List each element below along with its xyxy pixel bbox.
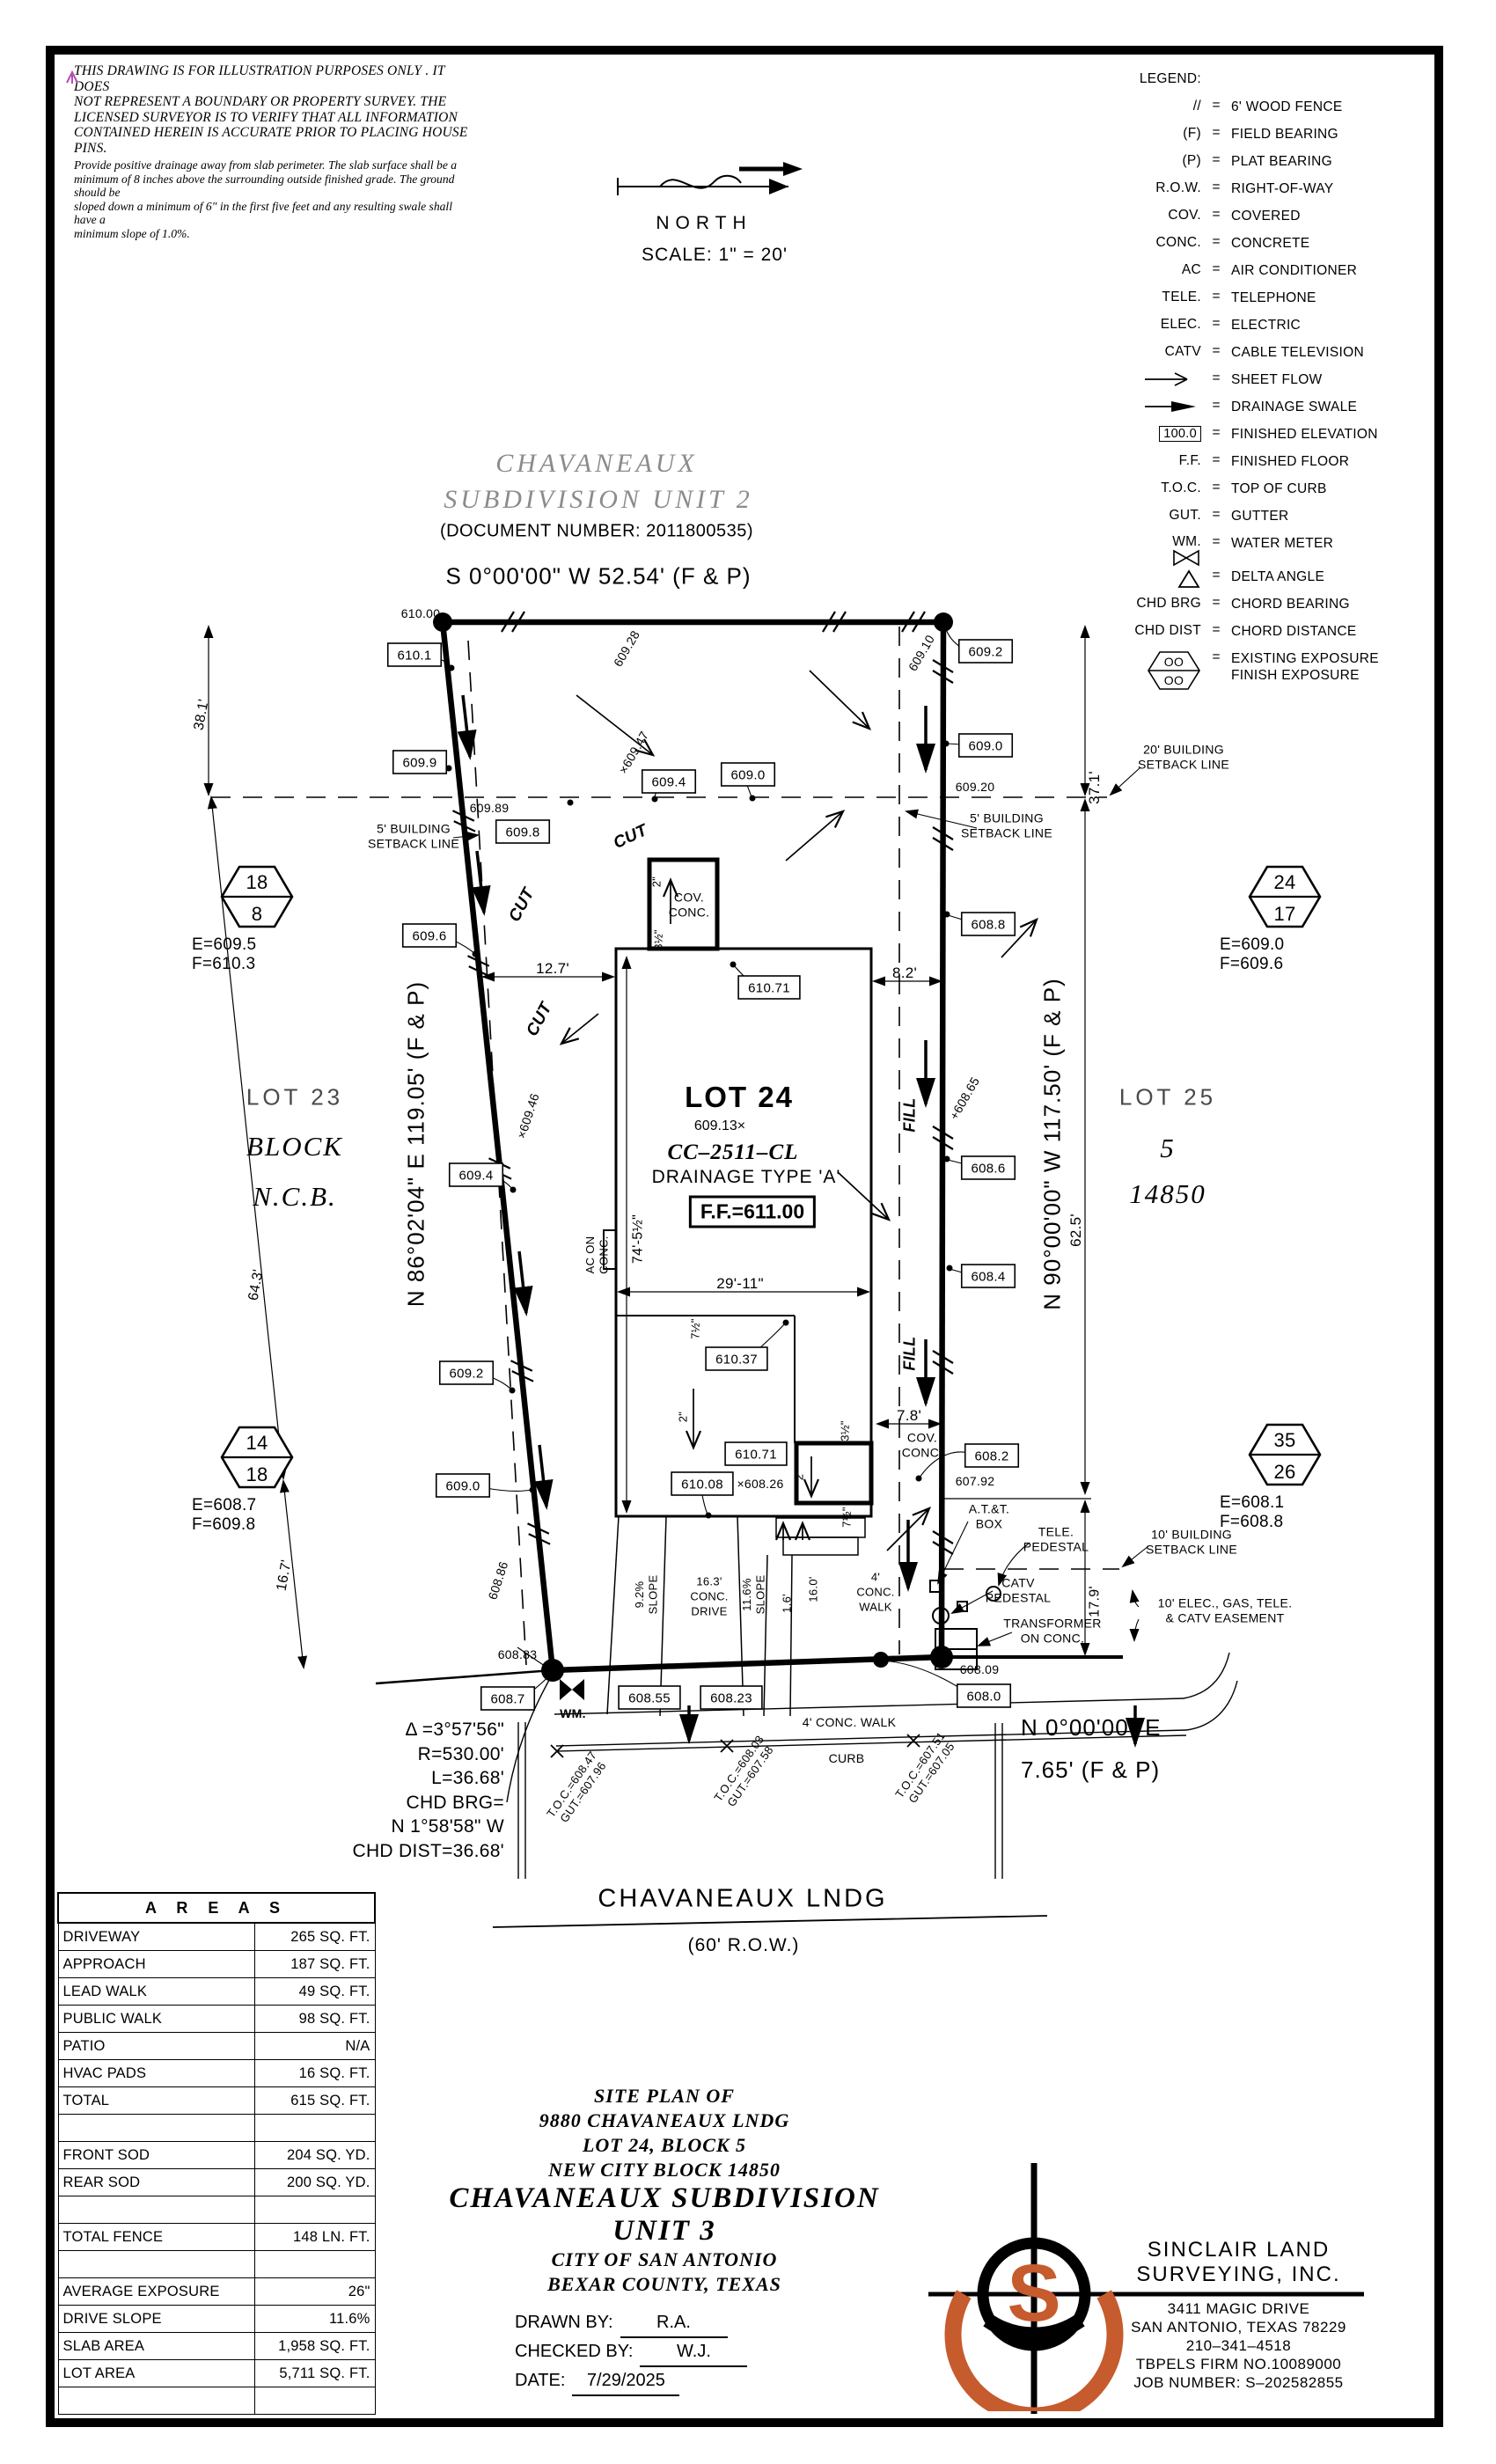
elevation-box-label: 608.6 <box>962 1156 1016 1179</box>
svg-text:609.28: 609.28 <box>611 628 642 670</box>
legend-description: CABLE TELEVISION <box>1231 343 1364 361</box>
legend-symbol: GUT. <box>1069 507 1201 524</box>
areas-row <box>58 2115 375 2142</box>
legend-symbol <box>1069 370 1201 387</box>
svg-text:PEDESTAL: PEDESTAL <box>1023 1539 1089 1553</box>
firm-name-1: SINCLAIR LAND <box>1135 2238 1342 2262</box>
firm-name: SINCLAIR LAND SURVEYING, INC. <box>1135 2238 1342 2287</box>
svg-text:609.0: 609.0 <box>445 1478 480 1493</box>
svg-text:609.89: 609.89 <box>470 801 510 815</box>
plat-text-label: ×609.46 <box>514 1091 542 1140</box>
areas-value: 265 SQ. FT. <box>255 1923 375 1951</box>
svg-text:COV.: COV. <box>907 1431 937 1445</box>
svg-text:608.8: 608.8 <box>971 917 1005 932</box>
svg-text:F=608.8: F=608.8 <box>1220 1513 1283 1531</box>
svg-text:16.0': 16.0' <box>807 1576 820 1602</box>
plat-text-label: 5' BUILDINGSETBACK LINE <box>961 811 1052 840</box>
areas-row: PUBLIC WALK98 SQ. FT. <box>58 2006 375 2033</box>
lot23-block: BLOCK <box>246 1131 343 1162</box>
plat-text-label: 2" <box>650 876 664 888</box>
areas-row: DRIVEWAY265 SQ. FT. <box>58 1923 375 1951</box>
svg-text:12.7': 12.7' <box>536 960 569 977</box>
svg-text:7.8': 7.8' <box>897 1407 921 1424</box>
areas-value <box>255 2196 375 2224</box>
tb-line8: BEXAR COUNTY, TEXAS <box>418 2272 911 2297</box>
svg-text:26: 26 <box>1273 1461 1295 1483</box>
tb-line5: CHAVANEAUX SUBDIVISION <box>418 2182 911 2215</box>
svg-text:COV.: COV. <box>674 891 704 905</box>
plat-text-label: CONC. <box>690 1590 728 1603</box>
checked-by-label: CHECKED BY: <box>515 2342 633 2361</box>
plat-text-label: CUT <box>523 999 556 1039</box>
cursor-mark-icon <box>65 70 79 84</box>
svg-text:CURB: CURB <box>829 1751 865 1765</box>
legend-symbol: AC <box>1069 261 1201 278</box>
legend-symbol <box>1069 568 1201 590</box>
legend-row: F.F.=FINISHED FLOOR <box>1069 452 1439 480</box>
svg-text:64.3': 64.3' <box>246 1268 267 1302</box>
plat-text-label: 16.0' <box>807 1576 820 1602</box>
legend-title: LEGEND: <box>1069 70 1201 87</box>
areas-row: HVAC PADS16 SQ. FT. <box>58 2060 375 2087</box>
svg-text:610.37: 610.37 <box>715 1352 758 1367</box>
legend-symbol: F.F. <box>1069 452 1201 469</box>
svg-text:SETBACK LINE: SETBACK LINE <box>368 836 459 850</box>
scale-label: SCALE: 1" = 20' <box>642 245 788 266</box>
legend-equals: = <box>1201 595 1231 611</box>
svg-text:2": 2" <box>793 1470 806 1481</box>
areas-value: 16 SQ. FT. <box>255 2060 375 2087</box>
bearing-south-line-1: N 0°00'00" E <box>1021 1714 1161 1742</box>
areas-label: HVAC PADS <box>58 2060 255 2087</box>
checked-by-row: CHECKED BY:W.J. <box>515 2338 911 2367</box>
firm-logo-icon: S <box>928 2174 1140 2411</box>
svg-text:CONC.: CONC. <box>669 905 710 919</box>
legend-equals: = <box>1201 343 1231 359</box>
svg-text:29'-11": 29'-11" <box>716 1275 764 1292</box>
plat-text-label: 7.8' <box>897 1407 921 1424</box>
plat-text-label: 16.3' <box>696 1575 722 1588</box>
svg-text:35: 35 <box>1273 1429 1295 1451</box>
legend-equals: = <box>1201 480 1231 495</box>
exposure-marker: 2417E=609.0F=609.6 <box>1220 867 1320 973</box>
areas-value: 11.6% <box>255 2306 375 2333</box>
legend-description: GUTTER <box>1231 507 1289 524</box>
svg-text:AC ON: AC ON <box>583 1236 597 1274</box>
plat-text-label: 62.5' <box>1067 1214 1084 1247</box>
legend-equals: = <box>1201 180 1231 195</box>
svg-text:WM.: WM. <box>560 1706 586 1720</box>
plat-text-label: 5' BUILDINGSETBACK LINE <box>368 822 459 851</box>
svg-text:24: 24 <box>1273 871 1295 893</box>
svg-text:8: 8 <box>252 903 263 925</box>
plat-text-label: 10' BUILDINGSETBACK LINE <box>1146 1528 1237 1557</box>
legend-header-row: LEGEND: <box>1069 70 1439 98</box>
plat-text-label: 12.7' <box>536 960 569 977</box>
disclaimer-paragraph-1: THIS DRAWING IS FOR ILLUSTRATION PURPOSE… <box>74 63 470 156</box>
bearing-south-line-2: 7.65' (F & P) <box>1021 1756 1160 1784</box>
elevation-box-label: 610.1 <box>388 643 442 666</box>
plat-text-label: 609.20 <box>956 780 995 794</box>
svg-text:OO: OO <box>1164 655 1184 669</box>
plat-text-label: 29'-11" <box>716 1275 764 1292</box>
elevation-box-label: 608.2 <box>965 1444 1019 1467</box>
svg-text:11.6%: 11.6% <box>740 1578 753 1611</box>
plat-text-label: 608.86 <box>485 1559 510 1601</box>
date-value: 7/29/2025 <box>572 2367 679 2396</box>
svg-text:20' BUILDING: 20' BUILDING <box>1143 743 1224 757</box>
elevation-box-label: 610.71 <box>738 976 800 999</box>
areas-value: 204 SQ. YD. <box>255 2142 375 2169</box>
areas-row: REAR SOD200 SQ. YD. <box>58 2169 375 2196</box>
areas-label: DRIVE SLOPE <box>58 2306 255 2333</box>
svg-text:610.00: 610.00 <box>401 606 441 620</box>
legend-row: T.O.C.=TOP OF CURB <box>1069 480 1439 507</box>
legend-description: AIR CONDITIONER <box>1231 261 1357 279</box>
svg-text:A.T.&T.: A.T.&T. <box>969 1502 1009 1516</box>
svg-text:SETBACK LINE: SETBACK LINE <box>961 825 1052 840</box>
svg-text:3½": 3½" <box>652 929 665 950</box>
legend-row: 100.0=FINISHED ELEVATION <box>1069 425 1439 452</box>
plat-text-label: FILL <box>900 1336 918 1370</box>
tb-line7: CITY OF SAN ANTONIO <box>418 2248 911 2272</box>
legend-symbol: 100.0 <box>1069 425 1201 442</box>
areas-label <box>58 2251 255 2278</box>
firm-phone: 210–341–4518 <box>1118 2336 1360 2355</box>
bearing-north-line: S 0°00'00" W 52.54' (F & P) <box>445 563 751 590</box>
legend-symbol: T.O.C. <box>1069 480 1201 496</box>
areas-label: APPROACH <box>58 1951 255 1978</box>
elevation-box-label: 608.23 <box>700 1686 762 1709</box>
legend-row: =DRAINAGE SWALE <box>1069 398 1439 425</box>
disclaimer-block: THIS DRAWING IS FOR ILLUSTRATION PURPOSE… <box>74 63 470 241</box>
plat-text-label: AC ONCONC. <box>583 1236 611 1273</box>
lot25-label: LOT 25 <box>1119 1084 1216 1111</box>
legend-equals: = <box>1201 398 1231 414</box>
areas-row: SLAB AREA1,958 SQ. FT. <box>58 2333 375 2360</box>
plat-text-label: CATVPEDESTAL <box>986 1576 1052 1605</box>
svg-text:610.71: 610.71 <box>735 1447 777 1462</box>
areas-table: A R E A S DRIVEWAY265 SQ. FT.APPROACH187… <box>57 1892 376 2415</box>
legend-description: DRAINAGE SWALE <box>1231 398 1357 415</box>
legend-symbol: (P) <box>1069 152 1201 169</box>
elevation-box-label: 609.0 <box>436 1474 490 1497</box>
svg-text:608.55: 608.55 <box>628 1690 671 1705</box>
legend-description: CHORD DISTANCE <box>1231 622 1357 640</box>
elevation-box-label: 610.71 <box>725 1442 787 1465</box>
disclaimer-paragraph-2: Provide positive drainage away from slab… <box>74 158 470 241</box>
svg-text:CUT: CUT <box>523 999 556 1039</box>
svg-text:SLOPE: SLOPE <box>753 1575 766 1615</box>
plat-text-label: 8.2' <box>892 964 917 981</box>
logo-letter: S <box>1007 2248 1060 2338</box>
areas-value <box>255 2115 375 2142</box>
legend-equals: = <box>1201 207 1231 223</box>
svg-text:609.2: 609.2 <box>968 644 1002 659</box>
plat-text-label: 74'-5½" <box>631 1214 646 1264</box>
plat-text-label: WALK <box>859 1601 892 1614</box>
plat-text-label: TRANSFORMERON CONC. <box>1003 1617 1101 1646</box>
svg-text:608.83: 608.83 <box>498 1647 538 1661</box>
plat-text-label: DRIVE <box>691 1605 727 1618</box>
bearing-west-line: N 86°02'04" E 119.05' (F & P) <box>403 981 430 1307</box>
legend-row: COV.=COVERED <box>1069 207 1439 234</box>
tb-line3: LOT 24, BLOCK 5 <box>418 2133 911 2158</box>
legend-description: CHORD BEARING <box>1231 595 1350 612</box>
svg-text:37.1': 37.1' <box>1086 771 1103 804</box>
areas-value: 26" <box>255 2278 375 2306</box>
areas-row: DRIVE SLOPE11.6% <box>58 2306 375 2333</box>
svg-text:609.0: 609.0 <box>968 738 1002 753</box>
legend-row: =SHEET FLOW <box>1069 370 1439 398</box>
plat-text-label: TELE.PEDESTAL <box>1023 1525 1089 1554</box>
elevation-box-label: 608.0 <box>957 1684 1011 1707</box>
svg-text:608.6: 608.6 <box>971 1161 1005 1176</box>
svg-text:CONC.: CONC. <box>690 1590 728 1603</box>
tb-line2: 9880 CHAVANEAUX LNDG <box>418 2108 911 2133</box>
legend-symbol: ELEC. <box>1069 316 1201 333</box>
legend-description: 6' WOOD FENCE <box>1231 98 1343 115</box>
areas-value: N/A <box>255 2033 375 2060</box>
areas-label: REAR SOD <box>58 2169 255 2196</box>
legend-items: //=6' WOOD FENCE(F)=FIELD BEARING(P)=PLA… <box>1069 98 1439 691</box>
areas-row: FRONT SOD204 SQ. YD. <box>58 2142 375 2169</box>
site-plan-page: 610.00610.1609.9609.89609.8609.6609.4609… <box>0 0 1496 2464</box>
svg-text:CUT: CUT <box>505 884 539 925</box>
areas-label: LOT AREA <box>58 2360 255 2387</box>
legend-row: GUT.=GUTTER <box>1069 507 1439 534</box>
north-label: NORTH <box>656 213 752 234</box>
areas-value: 1,958 SQ. FT. <box>255 2333 375 2360</box>
elevation-box-label: 609.8 <box>496 820 550 843</box>
svg-text:ON CONC.: ON CONC. <box>1021 1631 1084 1645</box>
legend-symbol: CONC. <box>1069 234 1201 251</box>
legend-symbol: OOOO <box>1069 649 1201 691</box>
plat-text-label: CUT <box>611 821 651 853</box>
svg-text:609.2: 609.2 <box>449 1366 483 1381</box>
areas-row: AVERAGE EXPOSURE26" <box>58 2278 375 2306</box>
legend-row: WM.=WATER METER <box>1069 534 1439 568</box>
svg-text:609.9: 609.9 <box>402 755 436 770</box>
plat-text-label: 608.09 <box>960 1662 1000 1676</box>
date-row: DATE:7/29/2025 <box>515 2367 911 2396</box>
legend-row: CHD BRG=CHORD BEARING <box>1069 595 1439 622</box>
legend-description: WATER METER <box>1231 534 1333 552</box>
legend-symbol: R.O.W. <box>1069 180 1201 196</box>
elevation-box-label: 609.0 <box>959 734 1013 757</box>
elevation-box-label: 609.6 <box>403 924 457 947</box>
svg-text:BOX: BOX <box>976 1516 1003 1530</box>
date-label: DATE: <box>515 2371 565 2390</box>
legend-row: TELE.=TELEPHONE <box>1069 289 1439 316</box>
legend-row: =DELTA ANGLE <box>1069 568 1439 595</box>
svg-text:10' ELEC., GAS, TELE.: 10' ELEC., GAS, TELE. <box>1158 1596 1293 1610</box>
elevation-box-label: 609.0 <box>722 763 775 786</box>
lot24-title: LOT 24 <box>685 1081 794 1114</box>
legend-row: (F)=FIELD BEARING <box>1069 125 1439 152</box>
svg-text:5' BUILDING: 5' BUILDING <box>377 822 451 836</box>
legend-row: (P)=PLAT BEARING <box>1069 152 1439 180</box>
areas-label: DRIVEWAY <box>58 1923 255 1951</box>
svg-text:608.7: 608.7 <box>490 1691 524 1706</box>
subdivision-heading-2: SUBDIVISION UNIT 2 <box>444 485 752 515</box>
legend-description: FINISHED ELEVATION <box>1231 425 1378 443</box>
legend-symbol <box>1069 398 1201 414</box>
elevation-box-label: 609.2 <box>959 640 1013 663</box>
legend-description: ELECTRIC <box>1231 316 1301 334</box>
svg-text:DRIVE: DRIVE <box>691 1605 727 1618</box>
exposure-marker: 1418E=608.7F=609.8 <box>192 1427 292 1534</box>
svg-text:609.6: 609.6 <box>412 928 446 943</box>
plat-text-label: 2" <box>793 1470 806 1481</box>
svg-text:609.0: 609.0 <box>730 767 765 782</box>
areas-value: 49 SQ. FT. <box>255 1978 375 2006</box>
elevation-box-label: 608.4 <box>962 1265 1016 1287</box>
svg-text:×609.46: ×609.46 <box>514 1091 542 1140</box>
exposure-marker: 188E=609.5F=610.3 <box>192 867 292 973</box>
elevation-box-label: 609.9 <box>393 751 447 774</box>
svg-text:609.20: 609.20 <box>956 780 995 794</box>
svg-text:OO: OO <box>1164 673 1184 687</box>
areas-row: PATION/A <box>58 2033 375 2060</box>
legend-symbol: CATV <box>1069 343 1201 360</box>
legend-equals: = <box>1201 261 1231 277</box>
areas-row: TOTAL FENCE148 LN. FT. <box>58 2224 375 2251</box>
svg-text:14: 14 <box>246 1432 268 1454</box>
lot24-spot-elevation: 609.13× <box>694 1118 745 1134</box>
legend-equals: = <box>1201 234 1231 250</box>
firm-job-number: JOB NUMBER: S–202582855 <box>1118 2373 1360 2392</box>
legend-description: CONCRETE <box>1231 234 1309 252</box>
svg-text:609.10: 609.10 <box>906 633 937 674</box>
lot24-plan-number: CC–2511–CL <box>668 1140 799 1165</box>
elevation-box-label: 608.55 <box>619 1686 680 1709</box>
areas-value: 148 LN. FT. <box>255 2224 375 2251</box>
plat-text-label: 610.00 <box>401 606 441 620</box>
areas-label: TOTAL FENCE <box>58 2224 255 2251</box>
legend-equals: = <box>1201 370 1231 386</box>
areas-label: PATIO <box>58 2033 255 2060</box>
legend-equals: = <box>1201 316 1231 332</box>
areas-label: LEAD WALK <box>58 1978 255 2006</box>
elevation-box-label: 608.7 <box>481 1687 535 1710</box>
svg-text:4' CONC. WALK: 4' CONC. WALK <box>803 1715 897 1729</box>
svg-text:607.92: 607.92 <box>956 1474 995 1488</box>
svg-text:608.4: 608.4 <box>971 1269 1005 1284</box>
svg-text:608.2: 608.2 <box>974 1448 1008 1463</box>
svg-text:CATV: CATV <box>1001 1576 1035 1590</box>
svg-text:×608.26: ×608.26 <box>737 1477 783 1491</box>
legend: LEGEND: //=6' WOOD FENCE(F)=FIELD BEARIN… <box>1069 70 1439 691</box>
finished-floor-value: F.F.=611.00 <box>689 1196 816 1228</box>
elevation-box-label: 609.4 <box>450 1163 503 1186</box>
plat-text-label: A.T.&T.BOX <box>969 1502 1009 1531</box>
legend-symbol: CHD BRG <box>1069 595 1201 612</box>
water-meter-icon <box>560 1679 584 1700</box>
plat-text-label: COV.CONC. <box>902 1431 943 1460</box>
lot23-label: LOT 23 <box>246 1084 343 1111</box>
svg-text:F=609.6: F=609.6 <box>1220 955 1283 973</box>
svg-text:608.09: 608.09 <box>960 1662 1000 1676</box>
firm-name-2: SURVEYING, INC. <box>1135 2262 1342 2287</box>
svg-text:610.08: 610.08 <box>681 1477 723 1492</box>
firm-addr-1: 3411 MAGIC DRIVE <box>1118 2299 1360 2318</box>
legend-row: //=6' WOOD FENCE <box>1069 98 1439 125</box>
areas-label: PUBLIC WALK <box>58 2006 255 2033</box>
legend-symbol: // <box>1069 98 1201 114</box>
plat-text-label: 609.28 <box>611 628 642 670</box>
firm-address: 3411 MAGIC DRIVE SAN ANTONIO, TEXAS 7822… <box>1118 2299 1360 2392</box>
plat-text-label: 1.6' <box>781 1594 794 1613</box>
legend-description: TELEPHONE <box>1231 289 1316 306</box>
tb-line1: SITE PLAN OF <box>418 2084 911 2108</box>
plat-text-label: CONC. <box>856 1586 894 1599</box>
elevation-box-label: 609.4 <box>642 770 696 793</box>
svg-text:CONC.: CONC. <box>856 1586 894 1599</box>
legend-row: R.O.W.=RIGHT-OF-WAY <box>1069 180 1439 207</box>
svg-text:74'-5½": 74'-5½" <box>631 1214 646 1264</box>
legend-equals: = <box>1201 125 1231 141</box>
tb-line6: UNIT 3 <box>418 2215 911 2248</box>
legend-symbol: WM. <box>1069 534 1201 568</box>
svg-text:18: 18 <box>246 1463 268 1485</box>
areas-value: 5,711 SQ. FT. <box>255 2360 375 2387</box>
plat-text-label: 4' <box>871 1571 880 1584</box>
svg-text:PEDESTAL: PEDESTAL <box>986 1590 1052 1604</box>
svg-text:E=608.7: E=608.7 <box>192 1496 256 1514</box>
svg-text:610.71: 610.71 <box>748 980 790 995</box>
svg-text:F=610.3: F=610.3 <box>192 955 255 973</box>
firm-addr-2: SAN ANTONIO, TEXAS 78229 <box>1118 2318 1360 2336</box>
legend-equals: = <box>1201 507 1231 523</box>
svg-text:E=608.1: E=608.1 <box>1220 1493 1284 1512</box>
svg-text:9.2%: 9.2% <box>633 1580 646 1608</box>
firm-tbpels: TBPELS FIRM NO.10089000 <box>1118 2355 1360 2373</box>
svg-text:18: 18 <box>246 871 268 893</box>
tb-line4: NEW CITY BLOCK 14850 <box>418 2158 911 2182</box>
drawn-by-label: DRAWN BY: <box>515 2313 613 2332</box>
plat-text-label: 11.6%SLOPE <box>740 1575 767 1615</box>
lot25-block: 5 <box>1160 1133 1176 1164</box>
areas-value <box>255 2251 375 2278</box>
svg-text:TRANSFORMER: TRANSFORMER <box>1003 1617 1101 1631</box>
svg-text:17: 17 <box>1273 903 1295 925</box>
north-arrow-icon <box>607 151 818 208</box>
svg-text:1.6': 1.6' <box>781 1594 794 1613</box>
plat-text-label: FILL <box>900 1097 918 1132</box>
svg-text:608.86: 608.86 <box>485 1559 510 1601</box>
legend-row: OOOO=EXISTING EXPOSUREFINISH EXPOSURE <box>1069 649 1439 691</box>
svg-text:609.8: 609.8 <box>505 825 539 840</box>
svg-text:7½": 7½" <box>689 1318 702 1339</box>
areas-label: TOTAL <box>58 2087 255 2115</box>
svg-text:CONC.: CONC. <box>597 1236 610 1273</box>
svg-text:FILL: FILL <box>900 1097 918 1132</box>
svg-text:×609.47: ×609.47 <box>616 729 651 776</box>
lot24-drainage-type: DRAINAGE TYPE 'A' <box>652 1167 841 1188</box>
svg-text:62.5': 62.5' <box>1067 1214 1084 1247</box>
plat-text-label: CUT <box>505 884 539 925</box>
svg-text:608.0: 608.0 <box>966 1689 1001 1704</box>
plat-text-label: 37.1' <box>1086 771 1103 804</box>
areas-row <box>58 2251 375 2278</box>
legend-description: FINISHED FLOOR <box>1231 452 1349 470</box>
legend-description: RIGHT-OF-WAY <box>1231 180 1333 197</box>
svg-text:2": 2" <box>650 876 664 888</box>
svg-text:8.2': 8.2' <box>892 964 917 981</box>
elevation-box-label: 610.08 <box>671 1472 733 1495</box>
plat-text-label: 608.83 <box>498 1647 538 1661</box>
